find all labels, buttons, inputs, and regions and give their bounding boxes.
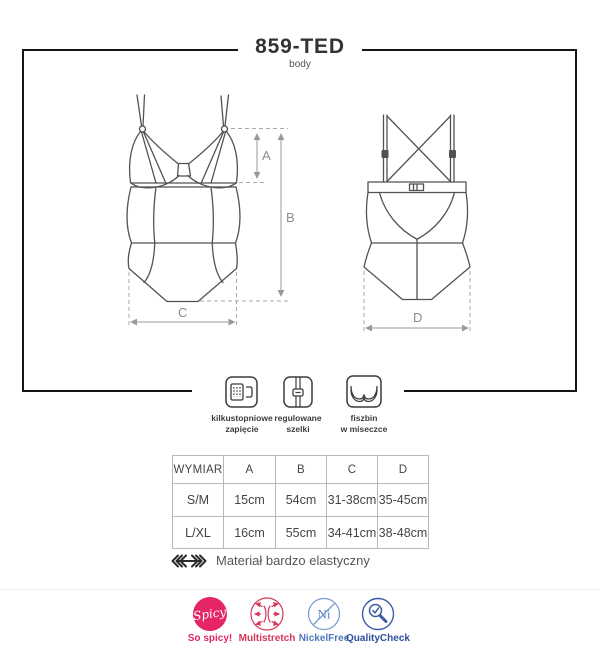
quality-check-badge-label: QualityCheck	[341, 633, 415, 644]
page-title: 859-TED	[238, 35, 362, 59]
size-table-row: L/XL 16cm 55cm 34-41cm 38-48cm	[173, 517, 429, 549]
size-table-row: S/M 15cm 54cm 31-38cm 35-45cm	[173, 484, 429, 517]
size-cell: 38-48cm	[378, 517, 429, 549]
feature-label-line: fiszbin	[322, 413, 406, 424]
size-table-header: A	[224, 456, 276, 484]
nickel-free-badge-icon: Ni	[306, 596, 342, 632]
size-cell: 35-45cm	[378, 484, 429, 517]
quality-check-badge-icon	[360, 596, 396, 632]
multistretch-badge-icon	[249, 596, 285, 632]
size-cell: 54cm	[276, 484, 327, 517]
size-table-header-row: WYMIAR A B C D	[173, 456, 429, 484]
spicy-badge-icon: Spicy	[193, 597, 227, 631]
stretch-arrow-icon	[170, 554, 208, 568]
header: 859-TED body	[238, 35, 362, 73]
size-cell: 16cm	[224, 517, 276, 549]
size-cell: 55cm	[276, 517, 327, 549]
drawing-frame	[22, 49, 577, 392]
strap-slider-icon	[283, 376, 313, 408]
section-divider	[0, 589, 600, 590]
material-note: Materiał bardzo elastyczny	[170, 553, 370, 568]
size-table: WYMIAR A B C D S/M 15cm 54cm 31-38cm 35-…	[172, 455, 429, 549]
size-cell: 31-38cm	[327, 484, 378, 517]
feature-label-line: w miseczce	[322, 424, 406, 435]
feature-label-underwire: fiszbin w miseczce	[322, 413, 406, 434]
product-spec-sheet: 859-TED body	[0, 0, 600, 663]
size-cell: L/XL	[173, 517, 224, 549]
page-subtitle: body	[238, 59, 362, 70]
material-note-text: Materiał bardzo elastyczny	[216, 553, 370, 568]
spicy-badge-text: Spicy	[193, 605, 228, 623]
hook-clasp-icon	[225, 376, 258, 408]
size-table-header: B	[276, 456, 327, 484]
size-table-header: C	[327, 456, 378, 484]
size-table-header: D	[378, 456, 429, 484]
size-table-header: WYMIAR	[173, 456, 224, 484]
size-cell: S/M	[173, 484, 224, 517]
underwire-cup-icon	[346, 375, 382, 408]
size-cell: 15cm	[224, 484, 276, 517]
size-cell: 34-41cm	[327, 517, 378, 549]
